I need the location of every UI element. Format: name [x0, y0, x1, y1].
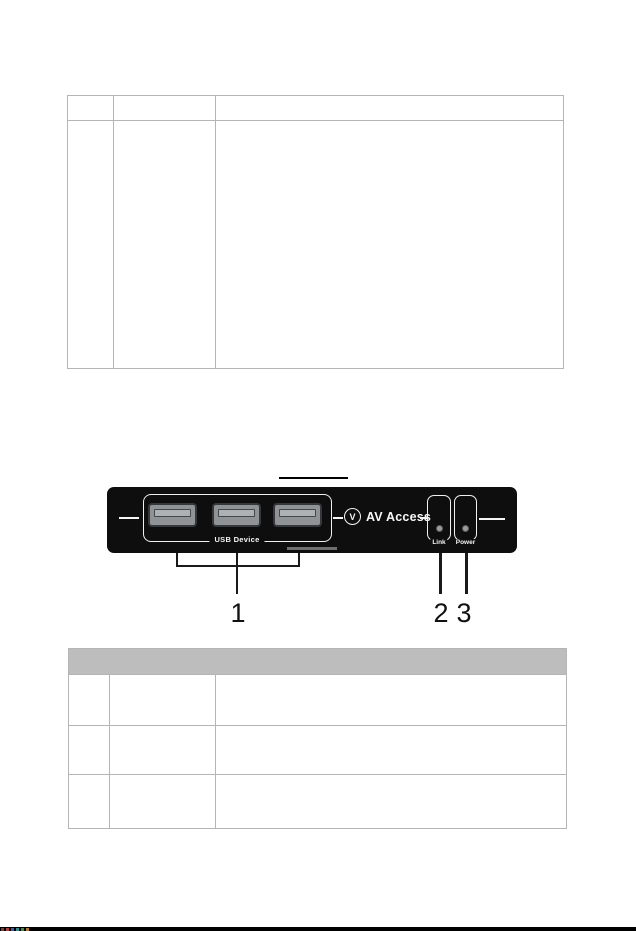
table-row — [69, 675, 567, 726]
power-led-label: Power — [454, 539, 478, 546]
logo-right-dash — [420, 517, 427, 519]
table-row — [69, 726, 567, 775]
table-cell — [69, 675, 110, 726]
table-cell — [69, 775, 110, 829]
table-cell — [114, 121, 216, 369]
link-led-icon — [436, 525, 443, 532]
callout-line-1 — [236, 553, 239, 594]
taskbar-pixel-icon — [26, 928, 29, 931]
table-row — [69, 775, 567, 829]
taskbar-pixel-icon — [11, 928, 14, 931]
bottom-edge-bar — [0, 927, 636, 931]
table-cell — [68, 121, 114, 369]
callout-number-2: 2 — [430, 599, 452, 627]
taskbar-pixel-icon — [21, 928, 24, 931]
usb-port-icon — [148, 503, 197, 527]
table-cell — [216, 96, 564, 121]
top-table — [67, 95, 564, 369]
table-header-row — [69, 649, 567, 675]
table-cell — [216, 726, 567, 775]
heading-underline — [279, 477, 348, 479]
usb-slot-icon — [279, 509, 316, 517]
taskbar-pixel-icon — [6, 928, 9, 931]
callout-line-3 — [465, 553, 468, 594]
panel-left-dash — [119, 517, 139, 519]
power-led-outline — [454, 495, 477, 541]
usb-section-label: USB Device — [209, 535, 264, 544]
link-led-outline — [427, 495, 451, 541]
table-row — [68, 96, 564, 121]
power-led-icon — [462, 525, 469, 532]
panel-bottom-slot — [287, 547, 337, 550]
callout-number-3: 3 — [453, 599, 475, 627]
table-cell — [68, 96, 114, 121]
link-led-label: Link — [430, 539, 447, 546]
table-cell — [110, 726, 216, 775]
table-header-cell — [69, 649, 567, 675]
table-cell — [216, 675, 567, 726]
usb-port-icon — [212, 503, 261, 527]
usb-port-icon — [273, 503, 322, 527]
callout-number-1: 1 — [227, 599, 249, 627]
usb-slot-icon — [154, 509, 191, 517]
callout-line-2 — [439, 553, 442, 594]
taskbar-pixel-icon — [1, 928, 4, 931]
table-cell — [110, 675, 216, 726]
av-access-logo-icon: V — [344, 508, 361, 525]
table-cell — [69, 726, 110, 775]
usb-slot-icon — [218, 509, 255, 517]
table-cell — [216, 121, 564, 369]
taskbar-pixel-icon — [16, 928, 19, 931]
table-row — [68, 121, 564, 369]
logo-left-dash — [333, 517, 343, 519]
device-front-panel: USB Device V AV Access Link Power — [107, 487, 517, 553]
table-cell — [216, 775, 567, 829]
table-cell — [110, 775, 216, 829]
bottom-table — [68, 648, 567, 829]
table-cell — [114, 96, 216, 121]
panel-right-dash — [479, 518, 505, 520]
